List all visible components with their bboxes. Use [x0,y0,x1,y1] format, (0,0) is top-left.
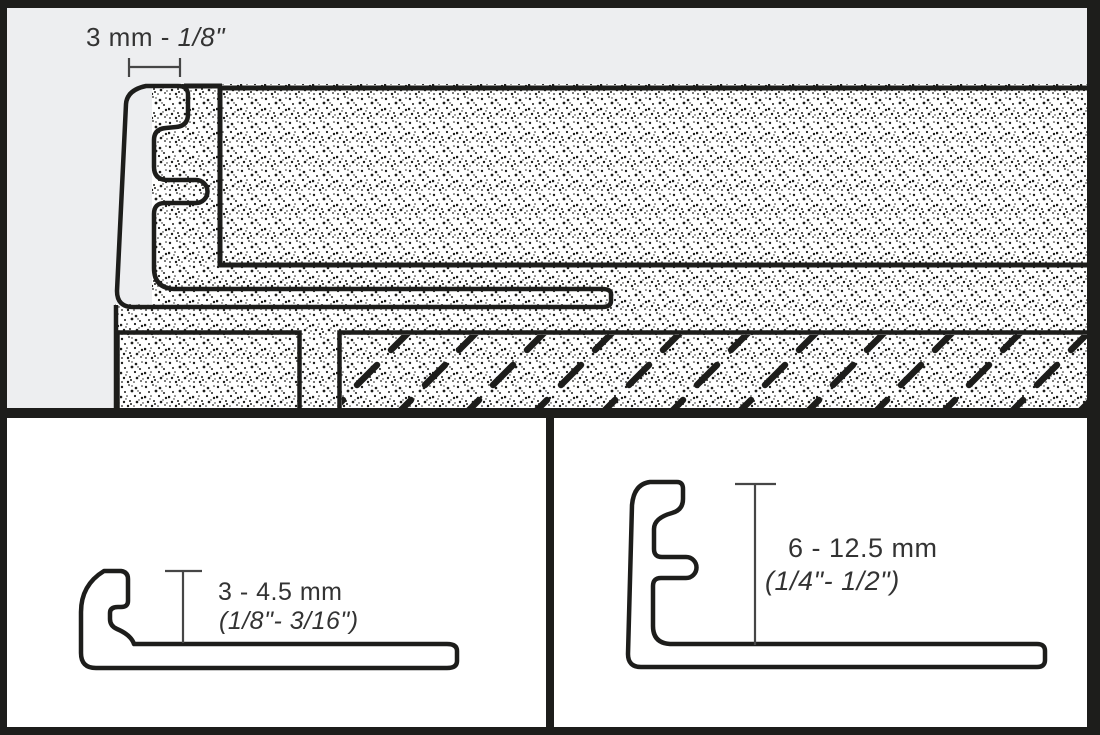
small-profile-metric-label: 3 - 4.5 mm [218,578,342,606]
frame-left [0,0,7,735]
width-dimension-label: 3 mm - 1/8" [86,22,226,52]
substrate-hatch [342,335,1090,413]
width-separator: - [153,22,178,52]
drawing-svg: 3 mm - 1/8" 3 - 4.5 mm (1/8"- 3/16") 6 -… [0,0,1100,735]
technical-drawing: 3 mm - 1/8" 3 - 4.5 mm (1/8"- 3/16") 6 -… [0,0,1100,735]
small-profile-panel: 3 - 4.5 mm (1/8"- 3/16") [7,416,546,728]
frame-middle-vertical [546,408,554,735]
width-imperial: 1/8" [178,22,227,52]
installation-cross-section-panel: 3 mm - 1/8" [7,8,1093,415]
small-profile-imperial-label: (1/8"- 3/16") [219,607,359,635]
frame-top [0,0,1100,8]
width-metric: 3 mm [86,22,153,52]
small-panel-background [7,416,546,728]
large-profile-panel: 6 - 12.5 mm (1/4"- 1/2") [554,416,1087,728]
large-profile-imperial-label: (1/4"- 1/2") [765,566,900,596]
frame-right [1087,0,1100,735]
large-profile-metric-label: 6 - 12.5 mm [788,533,938,563]
